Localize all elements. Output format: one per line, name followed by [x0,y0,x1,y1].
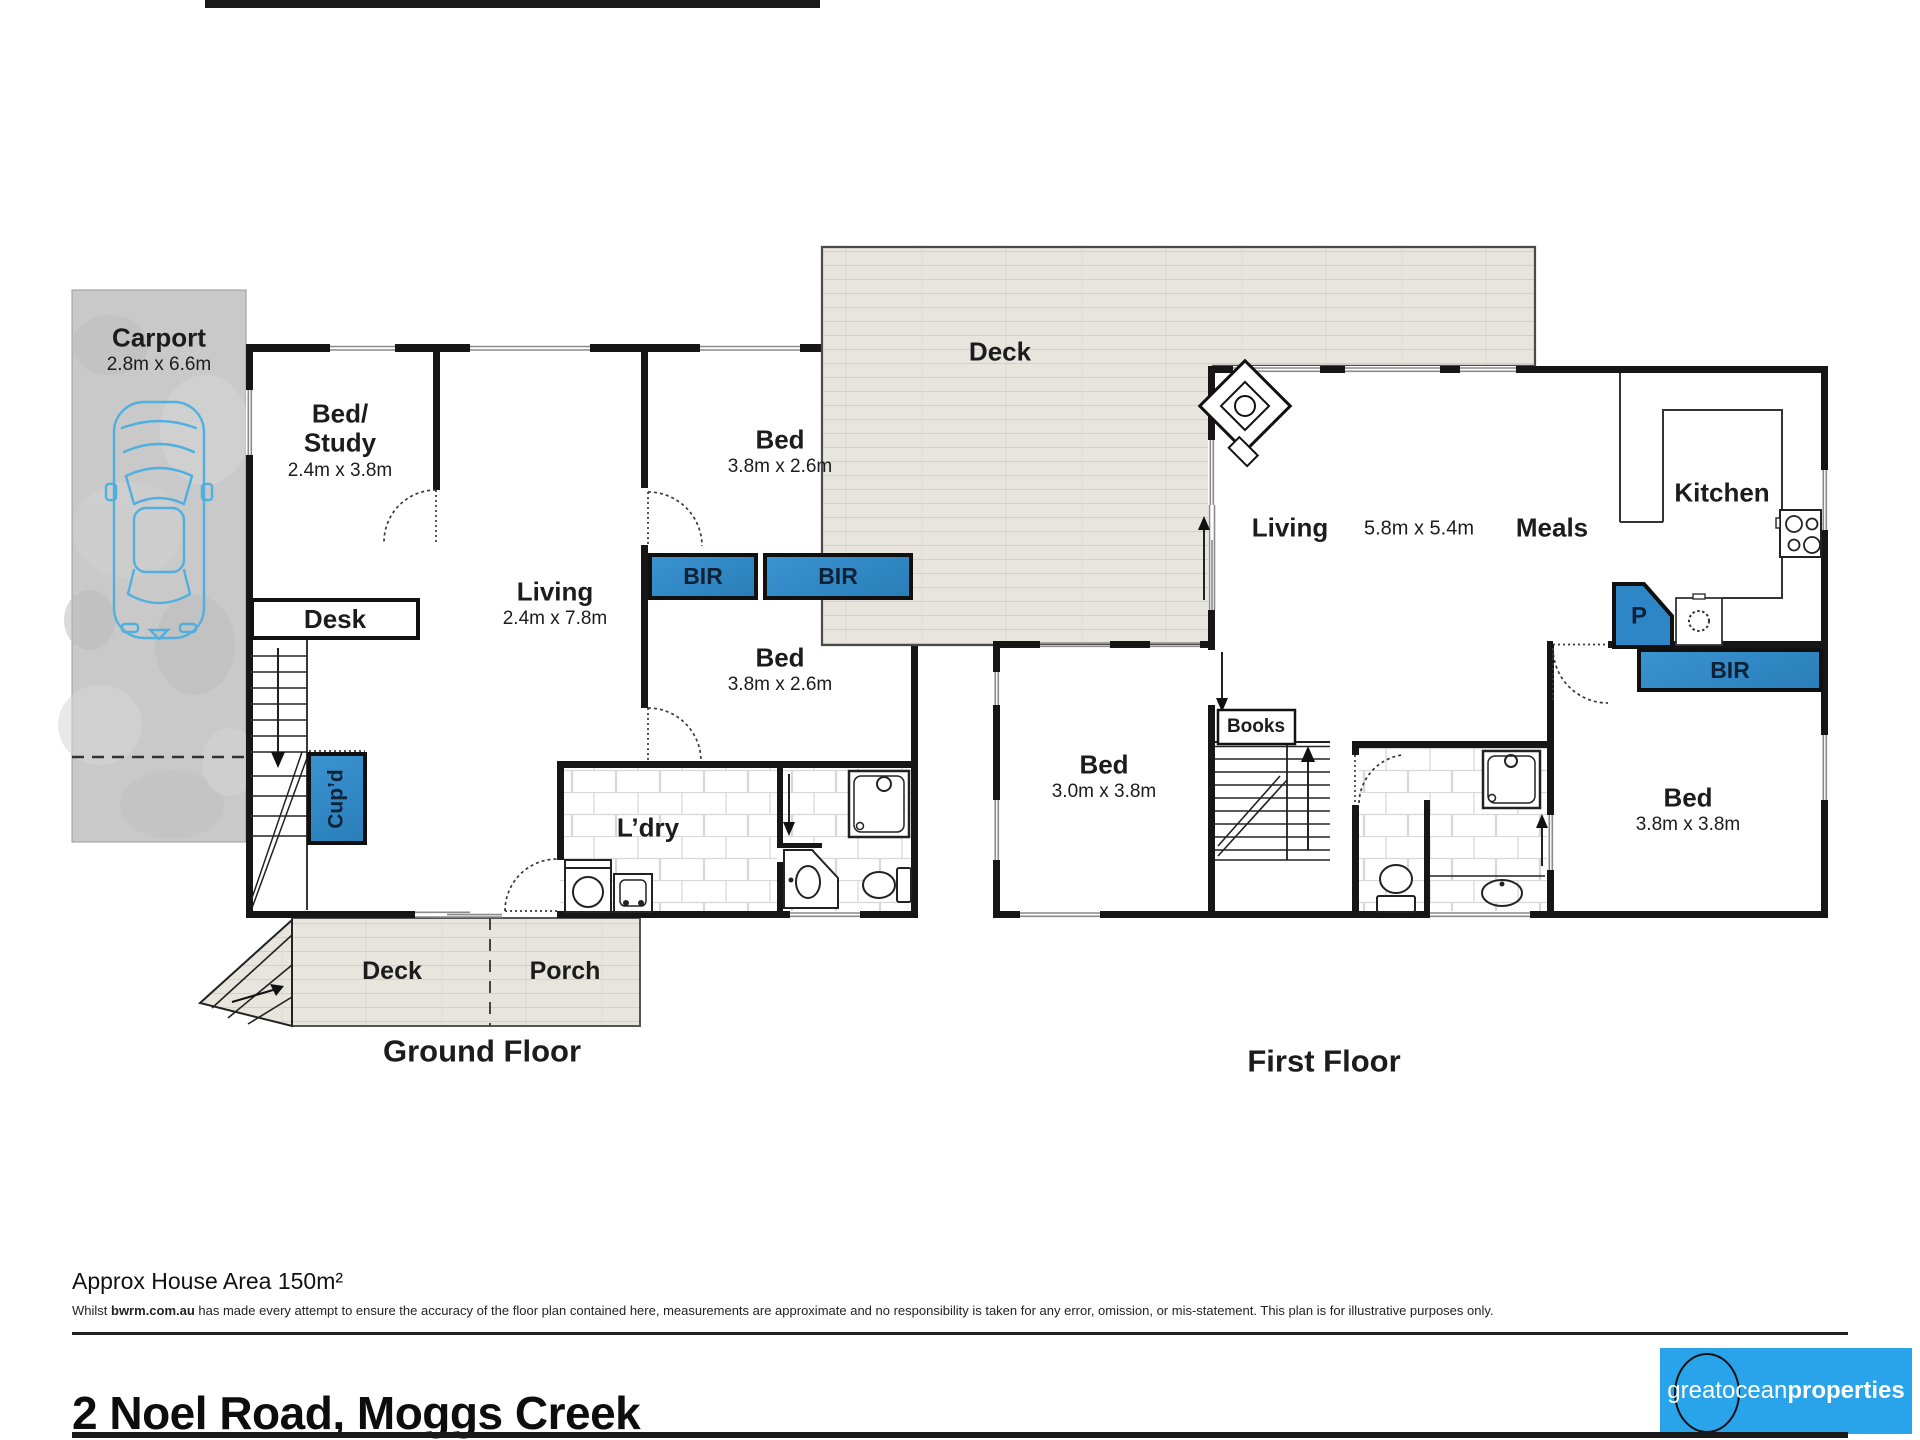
bed-top-dims: 3.8m x 2.6m [728,457,833,477]
bir-right-box: BIR [763,553,913,600]
disclaimer-prefix: Whilst [72,1303,111,1318]
upper-living-dims: 5.8m x 5.4m [1364,519,1474,540]
bir-left-box: BIR [648,553,758,600]
bed-study-label-1: Bed/ [312,400,368,427]
living-label: Living [517,578,594,605]
desk-box: Desk [250,598,420,640]
bed-right-dims: 3.8m x 3.8m [1636,815,1741,835]
carport-label: Carport [112,324,206,351]
ground-floor-caption: Ground Floor [383,1036,581,1069]
cooktop-icon [1776,510,1821,557]
bed-study-label-2: Study [304,429,376,456]
bed-top-label: Bed [755,426,804,453]
disclaimer-rest: has made every attempt to ensure the acc… [195,1303,1494,1318]
cupboard-box: Cup’d [307,752,367,845]
floorplan-graphics [0,0,1920,1440]
shower-icon [849,771,909,837]
footer-divider [72,1332,1848,1335]
bed-study-dims: 2.4m x 3.8m [288,461,393,481]
books-label: Books [1227,717,1285,737]
living-dims: 2.4m x 7.8m [503,609,608,629]
bir-right-label: BIR [818,563,858,590]
toilet-icon [863,868,911,902]
bir-upper-box: BIR [1637,648,1823,692]
disclaimer-brand: bwrm.com.au [111,1303,195,1318]
agency-logo: greatoceanproperties [1660,1348,1912,1434]
bottom-edge-artifact [72,1432,1848,1438]
floorplan-page: Desk BIR BIR Cup’d BIR Carport 2.8m x 6.… [0,0,1920,1440]
laundry-sink-icon [614,874,652,912]
bed-mid-dims: 3.8m x 2.6m [728,675,833,695]
first-floor-caption: First Floor [1247,1046,1400,1079]
bed-right-label: Bed [1663,784,1712,811]
area-note: Approx House Area 150m² [72,1268,343,1295]
disclaimer: Whilst bwrm.com.au has made every attemp… [72,1303,1494,1318]
bir-upper-label: BIR [1710,657,1750,684]
dishwasher-icon [1676,594,1722,645]
laundry-label: L’dry [617,814,679,841]
bed-left-label: Bed [1079,751,1128,778]
logo-text-great: great [1667,1377,1722,1404]
logo-text-properties: properties [1787,1377,1904,1404]
carport-dims: 2.8m x 6.6m [107,355,212,375]
deck-label: Deck [362,958,422,984]
logo-text-ocean: ocean [1722,1377,1787,1404]
bir-left-label: BIR [683,563,723,590]
logo-text: greatoceanproperties [1667,1377,1904,1405]
washing-machine-icon [565,860,611,912]
upper-deck-label: Deck [969,338,1031,365]
pantry-label: P [1631,603,1647,628]
bed-mid-label: Bed [755,644,804,671]
porch-label: Porch [530,958,601,984]
upper-living-label: Living [1252,514,1329,541]
bed-left-dims: 3.0m x 3.8m [1052,782,1157,802]
deck-steps-icon [200,920,292,1026]
desk-label: Desk [304,604,366,635]
upper-shower-icon [1483,751,1540,808]
cupboard-label: Cup’d [325,769,349,828]
kitchen-label: Kitchen [1674,479,1769,506]
meals-label: Meals [1516,514,1588,541]
